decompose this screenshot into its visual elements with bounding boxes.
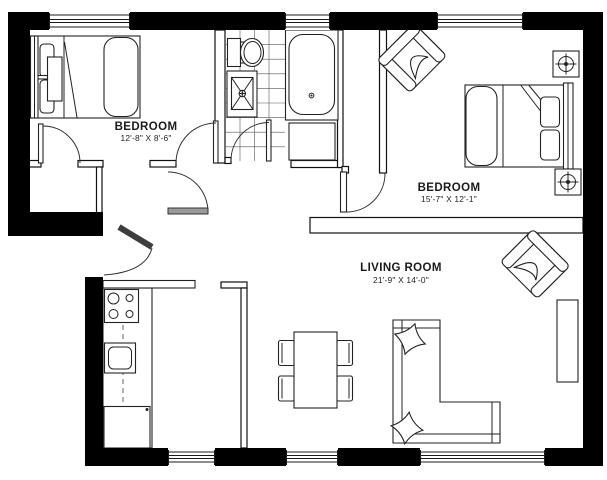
tv-console bbox=[557, 300, 578, 382]
refrigerator bbox=[104, 407, 150, 449]
bathroom-bottom-wall bbox=[291, 161, 342, 168]
pillow bbox=[541, 130, 560, 160]
window bbox=[168, 449, 215, 466]
dining-chair bbox=[279, 341, 295, 366]
window bbox=[285, 12, 330, 30]
side-table bbox=[48, 57, 63, 101]
kitchen-partition-wall bbox=[241, 288, 247, 448]
kitchen-partition-hook bbox=[221, 282, 247, 288]
dining-chair bbox=[337, 376, 353, 401]
bedroom2-label: BEDROOM bbox=[418, 182, 481, 194]
counter-return bbox=[103, 281, 195, 289]
kitchen-sink bbox=[105, 343, 136, 373]
dining-chair bbox=[279, 376, 295, 401]
bedroom1-label: BEDROOM bbox=[115, 121, 178, 133]
dining-table bbox=[294, 332, 337, 408]
window bbox=[286, 449, 338, 466]
bathroom-door-jamb bbox=[225, 158, 231, 164]
living-room-label: LIVING ROOM bbox=[360, 262, 442, 274]
floor-plan-drawing: BEDROOM 12'-8" X 8'-6" BEDROOM 15'-7" X … bbox=[0, 0, 607, 480]
bedroom2-living-partition-wall bbox=[310, 218, 583, 234]
bedroom1-dims: 12'-8" X 8'-6" bbox=[120, 133, 171, 143]
bedroom1-wall-segment bbox=[150, 161, 176, 168]
speaker bbox=[555, 169, 581, 195]
living-room-dims: 21'-9" X 14'-0" bbox=[373, 275, 429, 285]
bed-1 bbox=[31, 36, 141, 118]
bedroom1-wall-segment bbox=[78, 161, 103, 168]
toilet bbox=[228, 39, 264, 67]
window bbox=[437, 12, 523, 30]
window bbox=[420, 449, 545, 466]
shower-sink bbox=[227, 71, 257, 117]
window bbox=[49, 12, 130, 30]
bathtub bbox=[286, 30, 339, 120]
entry-closet-wall bbox=[97, 167, 103, 216]
pillow bbox=[541, 97, 560, 127]
bed-2 bbox=[465, 83, 573, 169]
floor-plan: BEDROOM 12'-8" X 8'-6" BEDROOM 15'-7" X … bbox=[0, 0, 607, 480]
bathroom-cabinet bbox=[289, 123, 335, 160]
dining-chair bbox=[337, 341, 353, 366]
bedroom2-dims: 15'-7" X 12'-1" bbox=[421, 194, 477, 204]
speaker bbox=[553, 51, 579, 77]
stove-cooktop bbox=[105, 290, 139, 323]
